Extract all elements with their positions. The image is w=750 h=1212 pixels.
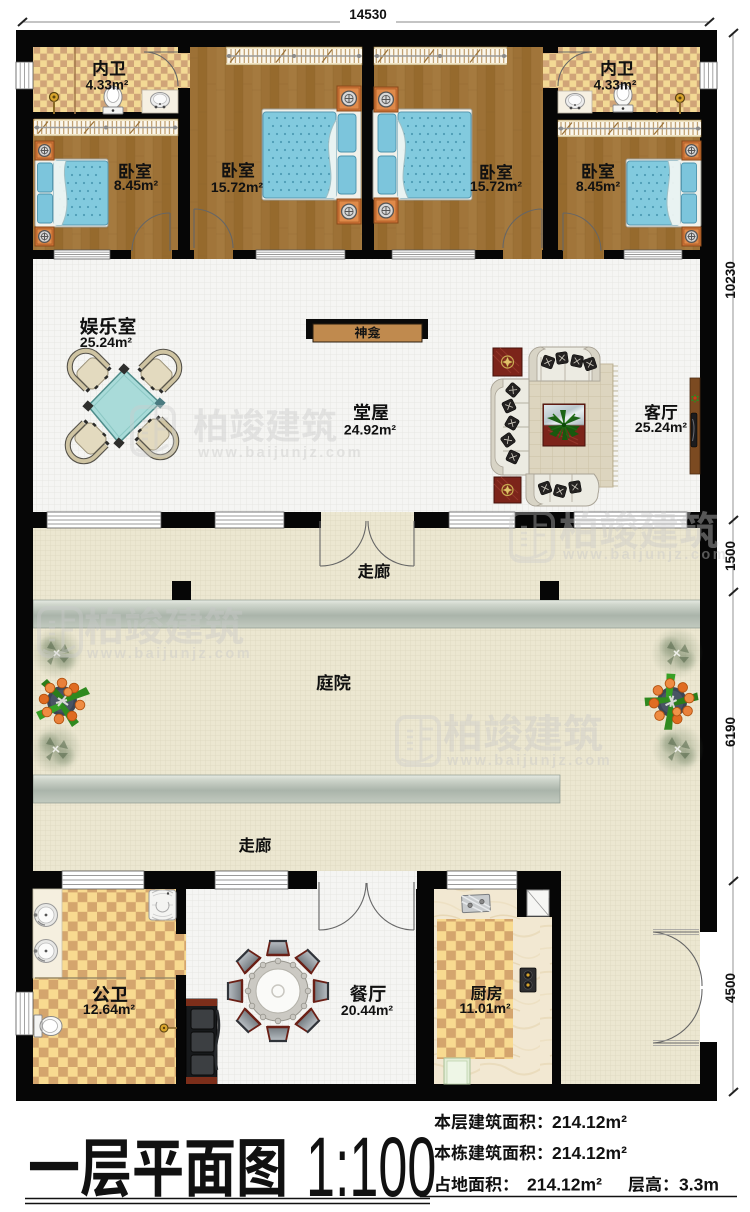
svg-text:24.92m²: 24.92m² [344, 422, 396, 438]
svg-text:4.33m²: 4.33m² [594, 77, 637, 92]
svg-text:11.01m²: 11.01m² [459, 1000, 511, 1016]
svg-text:www.baijunjz.com: www.baijunjz.com [446, 753, 612, 769]
svg-text:15.72m²: 15.72m² [470, 178, 522, 194]
svg-text:www.baijunjz.com: www.baijunjz.com [562, 547, 728, 563]
svg-text:4500: 4500 [723, 973, 738, 1003]
svg-text:www.baijunjz.com: www.baijunjz.com [197, 445, 363, 461]
svg-text:10230: 10230 [723, 261, 738, 299]
svg-text:214.12m²: 214.12m² [552, 1143, 627, 1163]
svg-text:20.44m²: 20.44m² [341, 1002, 393, 1018]
svg-text:12.64m²: 12.64m² [83, 1001, 135, 1017]
svg-text:www.baijunjz.com: www.baijunjz.com [86, 646, 252, 662]
svg-text:4.33m²: 4.33m² [86, 77, 129, 92]
svg-text:6190: 6190 [723, 717, 738, 747]
svg-text:14530: 14530 [349, 7, 387, 22]
svg-text:214.12m²: 214.12m² [552, 1112, 627, 1132]
svg-text:15.72m²: 15.72m² [211, 179, 263, 195]
svg-text:25.24m²: 25.24m² [80, 334, 132, 350]
svg-text:214.12m²: 214.12m² [527, 1175, 602, 1195]
svg-text:8.45m²: 8.45m² [576, 178, 621, 194]
svg-text:3.3m: 3.3m [679, 1175, 719, 1195]
svg-text:1:100: 1:100 [306, 1120, 436, 1207]
svg-text:25.24m²: 25.24m² [635, 419, 687, 435]
svg-text:8.45m²: 8.45m² [114, 177, 159, 193]
